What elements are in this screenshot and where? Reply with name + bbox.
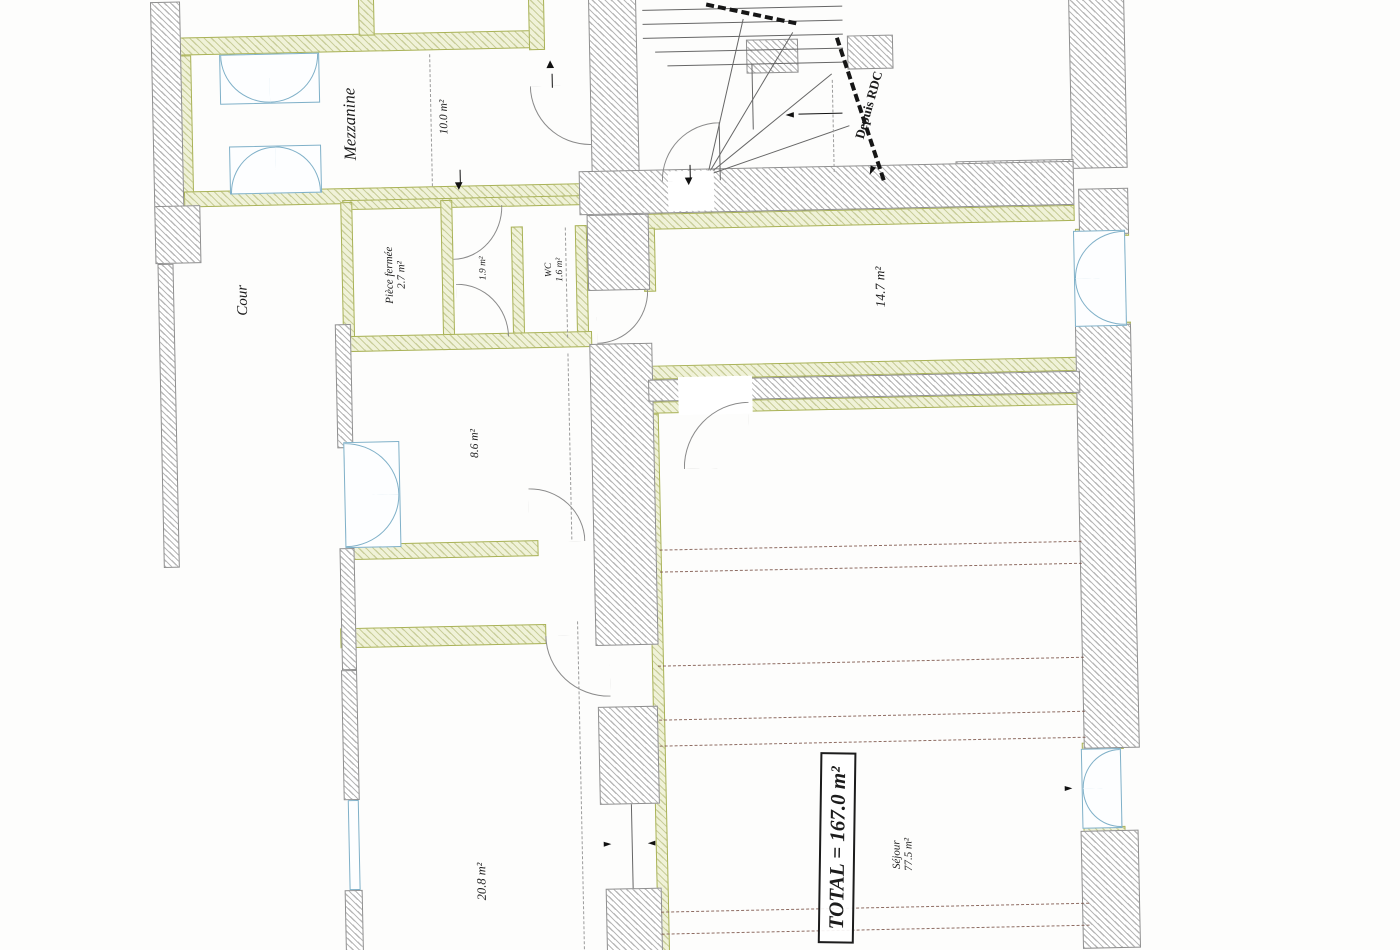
exterior-wall — [150, 2, 185, 223]
partition-wall — [511, 226, 525, 340]
interior-wall — [587, 214, 651, 291]
stair-direction-arrow-icon: ◄ — [785, 109, 794, 120]
exterior-wall — [345, 890, 365, 950]
stair-pier — [847, 35, 894, 70]
window-arrow-icon: ► — [1065, 784, 1073, 794]
exterior-wall — [1081, 830, 1141, 949]
partition-wall — [528, 0, 545, 50]
niche-divider — [631, 804, 634, 888]
stair-landing-pier — [746, 39, 799, 74]
door-leaf-arc — [275, 146, 321, 193]
casement-arc — [1083, 788, 1122, 828]
exterior-wall — [1068, 0, 1128, 169]
french-door — [219, 53, 320, 105]
french-door — [229, 145, 322, 195]
room-label-open-area: 10.0 m² — [438, 100, 452, 135]
stair-direction-line — [798, 113, 842, 115]
entry-arrow-icon: ▼ — [455, 182, 463, 192]
entry-arrow-stem — [552, 74, 553, 88]
ceiling-line — [660, 541, 1082, 551]
exterior-wall — [339, 548, 357, 670]
casement-arc — [1074, 231, 1125, 279]
reference-line — [565, 227, 568, 337]
entry-arrow-icon: ▲ — [546, 60, 554, 70]
room-label-piece-fermee: Pièce fermée 2.7 m² — [383, 246, 409, 304]
door-swing — [530, 85, 591, 146]
exterior-wall — [154, 205, 201, 264]
door-swing — [452, 205, 503, 260]
floor-plan: ◄ ► ► ◄ ► ▼ ▲ ▼ Mezzanine 10.0 m² Cour P… — [0, 0, 1400, 950]
scanned-floor-plan-page: ◄ ► ► ◄ ► ▼ ▲ ▼ Mezzanine 10.0 m² Cour P… — [0, 0, 1400, 950]
room-label-14-7: 14.7 m² — [872, 266, 888, 307]
stair-tread — [643, 34, 843, 39]
stair-boundary-line — [832, 80, 835, 172]
room-label-wc: WC 1.6 m² — [544, 258, 566, 282]
window — [1073, 230, 1127, 327]
door-swing — [456, 283, 509, 338]
room-label-vestibule: 1.9 m² — [478, 256, 489, 280]
door-leaf-arc — [269, 54, 319, 103]
french-door — [343, 441, 401, 548]
ceiling-line — [662, 925, 1090, 935]
casement-arc — [1082, 749, 1121, 789]
total-area-box: TOTAL = 167.0 m² — [818, 752, 857, 943]
total-area-annotation: TOTAL = 167.0 m² — [825, 752, 851, 943]
door-leaf-arc — [220, 55, 270, 104]
partition-wall — [340, 624, 546, 648]
door-swing — [528, 487, 585, 542]
passage-arrow-icon: ► — [604, 840, 612, 850]
stair-wall — [588, 0, 640, 173]
exterior-wall — [157, 264, 179, 568]
room-label-20-8: 20.8 m² — [474, 862, 489, 900]
ceiling-line — [660, 737, 1086, 747]
casement-arc — [1075, 278, 1126, 326]
door-leaf-arc — [345, 494, 400, 547]
window — [1081, 748, 1123, 829]
exterior-wall — [1078, 188, 1129, 235]
door-leaf-arc — [344, 442, 399, 495]
partition-wall — [358, 0, 375, 36]
room-label-mezzanine: Mezzanine — [339, 87, 360, 160]
exterior-wall — [335, 324, 354, 448]
room-label-cour: Cour — [235, 285, 252, 316]
ceiling-line — [661, 903, 1089, 913]
window — [348, 800, 361, 890]
interior-wall — [598, 706, 660, 805]
ceiling-line — [658, 657, 1084, 667]
door-leaf-arc — [230, 147, 276, 194]
exterior-wall — [341, 670, 360, 800]
passage-arrow-icon: ◄ — [648, 839, 656, 849]
exterior-wall — [1075, 324, 1140, 749]
room-label-8-6: 8.6 m² — [469, 429, 482, 458]
ceiling-line — [659, 711, 1085, 721]
door-swing — [596, 290, 649, 344]
room-label-sejour: Séjour 77.5 m² — [890, 838, 915, 872]
ceiling-line — [660, 563, 1082, 573]
entry-arrow-icon: ▼ — [685, 177, 693, 187]
mezzanine-edge-line — [429, 54, 433, 186]
door-swing — [545, 635, 610, 698]
interior-wall — [606, 888, 663, 950]
